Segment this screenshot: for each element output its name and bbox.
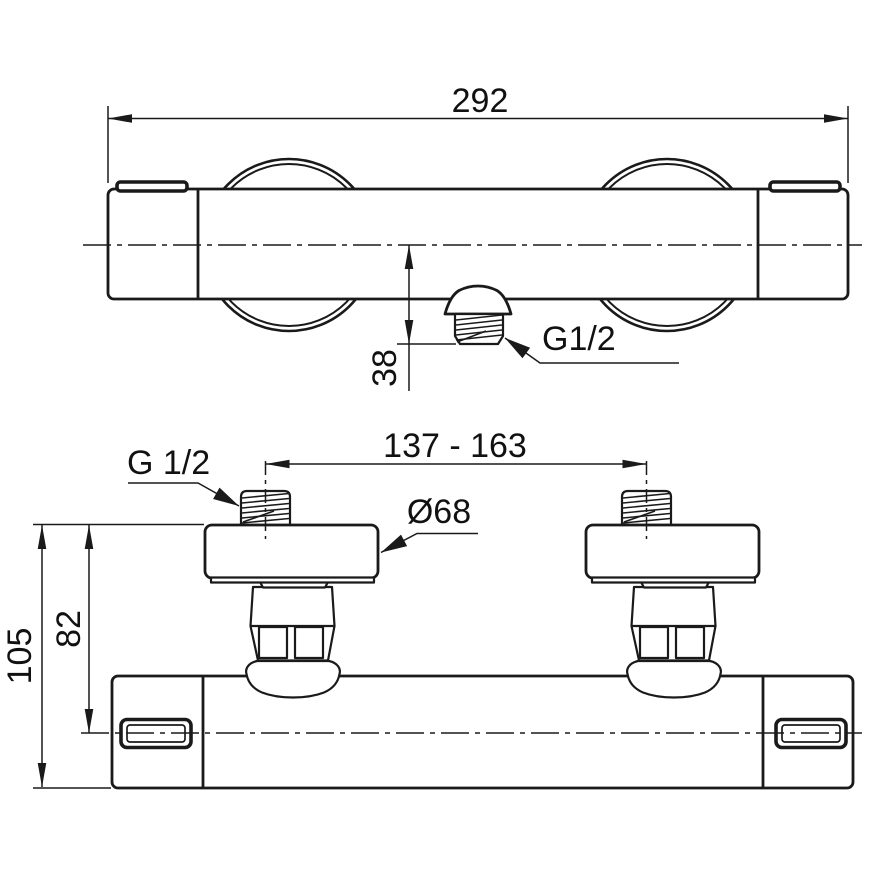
left-inlet-connector bbox=[205, 491, 378, 698]
leader-arrow bbox=[505, 338, 530, 358]
escutcheon-lip bbox=[592, 578, 755, 583]
escutcheon-lip bbox=[211, 578, 374, 583]
dim-arrow-right bbox=[824, 114, 848, 123]
label-outlet-thread: G1/2 bbox=[505, 320, 679, 363]
outlet-offset-label: 38 bbox=[366, 349, 404, 387]
dim-arrow-left bbox=[266, 460, 290, 469]
outlet-thread-label: G1/2 bbox=[542, 320, 616, 358]
dim-arrow-right bbox=[623, 460, 647, 469]
escutcheon-diameter-label: Ø68 bbox=[407, 493, 471, 531]
dim-overall-width: 292 bbox=[108, 82, 848, 183]
transition-bell bbox=[627, 661, 721, 698]
label-escutcheon-diameter: Ø68 bbox=[381, 493, 478, 553]
dim-inlet-spacing: 137 - 163 bbox=[266, 427, 647, 468]
escutcheon-flange bbox=[586, 525, 759, 578]
drawing-svg: 292 38 G1/2 bbox=[0, 0, 880, 880]
front-view bbox=[81, 461, 862, 788]
dim-overall-height: 105 bbox=[1, 525, 46, 787]
dim-arrow-left bbox=[108, 114, 132, 123]
union-nut bbox=[632, 587, 716, 661]
right-cap-slot bbox=[770, 182, 840, 191]
right-inlet-connector bbox=[586, 491, 759, 698]
outlet-thread bbox=[455, 314, 503, 344]
overall-width-label: 292 bbox=[452, 82, 509, 120]
leader-arrow bbox=[381, 535, 407, 553]
dim-arrow-down bbox=[405, 320, 414, 344]
union-nut bbox=[251, 587, 335, 661]
technical-drawing-canvas: 292 38 G1/2 bbox=[0, 0, 880, 880]
mixer-bar-body-front bbox=[112, 676, 853, 788]
left-cap-slot bbox=[117, 182, 187, 191]
inlet-thread-label: G 1/2 bbox=[127, 444, 210, 482]
dim-axis-height: 82 bbox=[50, 525, 93, 733]
mixer-bar-body bbox=[108, 189, 848, 299]
overall-height-label: 105 bbox=[1, 628, 39, 685]
escutcheon-flange bbox=[205, 525, 378, 578]
leader-arrow bbox=[213, 488, 239, 506]
transition-bell bbox=[246, 661, 340, 698]
label-inlet-thread: G 1/2 bbox=[127, 444, 239, 506]
axis-height-label: 82 bbox=[50, 610, 88, 648]
inlet-spacing-label: 137 - 163 bbox=[383, 427, 527, 465]
top-view bbox=[83, 159, 862, 344]
